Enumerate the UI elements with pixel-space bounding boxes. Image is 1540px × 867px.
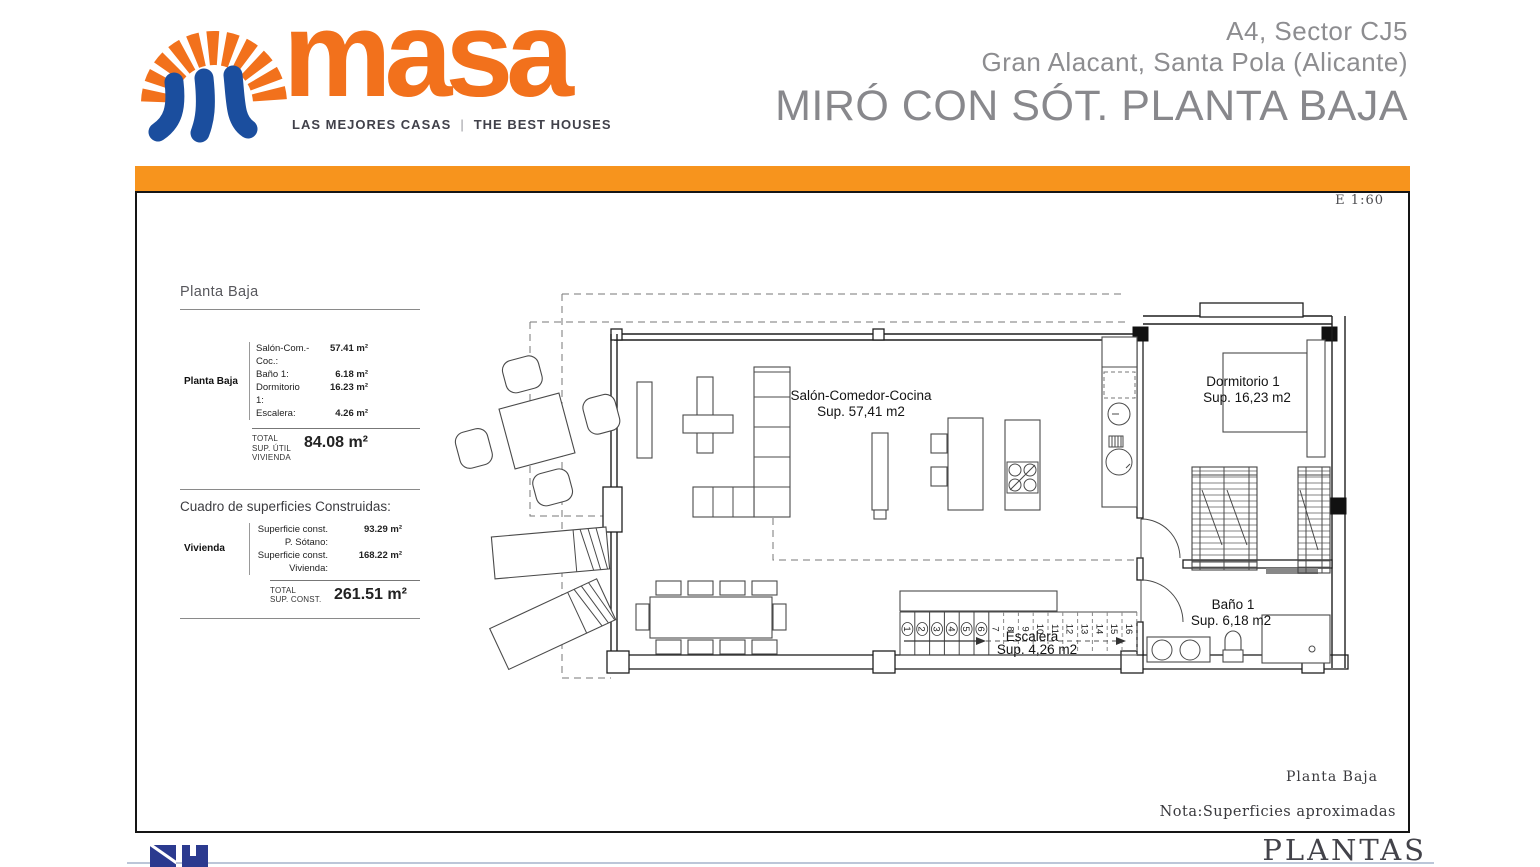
sheet-note: Nota:Superficies aproximadas bbox=[1160, 804, 1396, 820]
stair-number: 6 bbox=[975, 626, 986, 631]
wardrobe bbox=[1298, 467, 1330, 573]
footer-rule bbox=[127, 862, 1434, 864]
stair-number: 13 bbox=[1079, 624, 1090, 635]
floor-plan: 12345678910111213141516 Salón-Comedor-Co… bbox=[0, 0, 1540, 867]
label-escalera-area: Sup. 4,26 m2 bbox=[997, 642, 1077, 657]
bathroom-vanity bbox=[1147, 637, 1210, 662]
door-swings bbox=[1141, 519, 1183, 622]
stair-number: 1 bbox=[901, 626, 912, 631]
stair-number: 5 bbox=[960, 626, 971, 631]
label-dormitorio-area: Sup. 16,23 m2 bbox=[1203, 390, 1291, 405]
label-salon-area: Sup. 57,41 m2 bbox=[817, 404, 905, 419]
stair-number: 4 bbox=[945, 626, 956, 631]
label-salon-name: Salón-Comedor-Cocina bbox=[790, 388, 932, 403]
tv-bench bbox=[637, 382, 652, 458]
coffee-table bbox=[683, 377, 733, 453]
label-bano-area: Sup. 6,18 m2 bbox=[1191, 613, 1271, 628]
kitchen-island bbox=[872, 418, 983, 519]
stair-number: 3 bbox=[931, 626, 942, 631]
cooktop-island bbox=[1005, 420, 1040, 510]
label-dormitorio-name: Dormitorio 1 bbox=[1206, 374, 1280, 389]
footer-logo-square bbox=[182, 845, 208, 867]
footer-logo-square bbox=[150, 845, 176, 867]
stair-number: 16 bbox=[1123, 624, 1134, 635]
stair-number: 2 bbox=[916, 626, 927, 631]
shower bbox=[1262, 615, 1330, 663]
sun-lounger bbox=[491, 527, 609, 579]
toilet bbox=[1223, 631, 1243, 662]
plan-sheet-page: masa LAS MEJORES CASAS|THE BEST HOUSES A… bbox=[0, 0, 1540, 867]
stair-number: 14 bbox=[1093, 624, 1104, 635]
stair-number: 7 bbox=[990, 626, 1001, 631]
plan-caption: Planta Baja bbox=[1286, 769, 1378, 785]
label-bano-name: Baño 1 bbox=[1212, 597, 1255, 612]
dining-table-set bbox=[636, 581, 786, 654]
basement-outline bbox=[530, 294, 1137, 678]
sun-lounger bbox=[490, 579, 616, 670]
kitchen-counter bbox=[1102, 337, 1137, 507]
stair-number: 12 bbox=[1064, 624, 1075, 635]
stair-number: 15 bbox=[1108, 624, 1119, 635]
